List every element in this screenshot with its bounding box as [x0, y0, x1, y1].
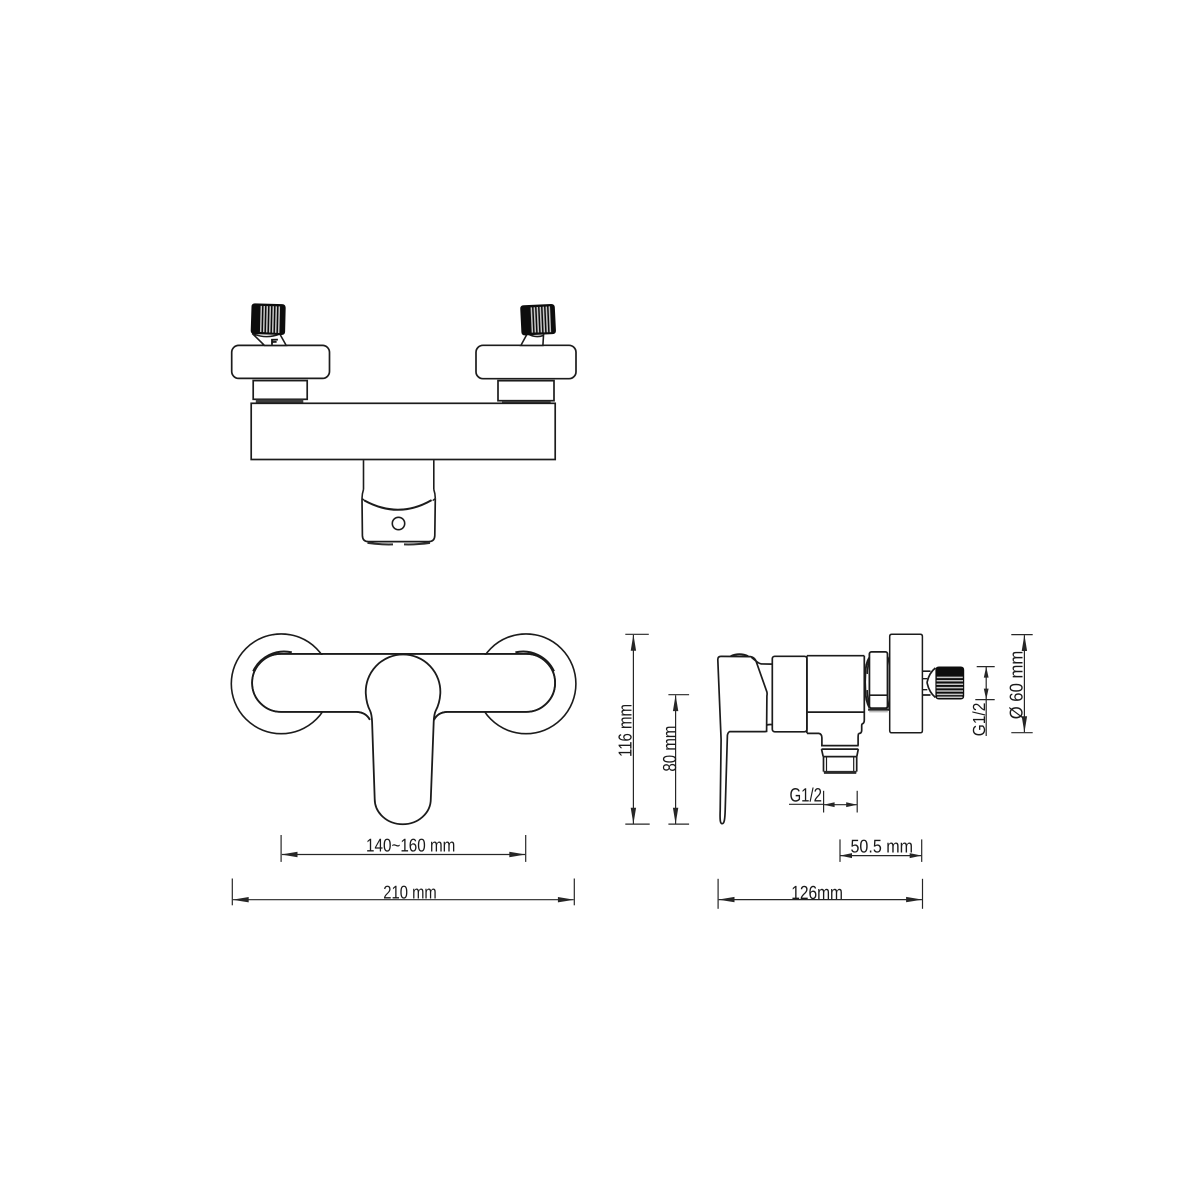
- svg-text:126mm: 126mm: [791, 883, 843, 904]
- svg-text:Ø 60 mm: Ø 60 mm: [1006, 651, 1027, 720]
- svg-text:140~160 mm: 140~160 mm: [366, 835, 455, 856]
- svg-text:G1/2: G1/2: [969, 703, 989, 737]
- svg-text:116 mm: 116 mm: [614, 704, 635, 757]
- svg-text:G1/2: G1/2: [790, 786, 823, 807]
- svg-text:80 mm: 80 mm: [659, 726, 680, 772]
- svg-text:50.5 mm: 50.5 mm: [851, 835, 914, 856]
- svg-text:210 mm: 210 mm: [383, 881, 436, 902]
